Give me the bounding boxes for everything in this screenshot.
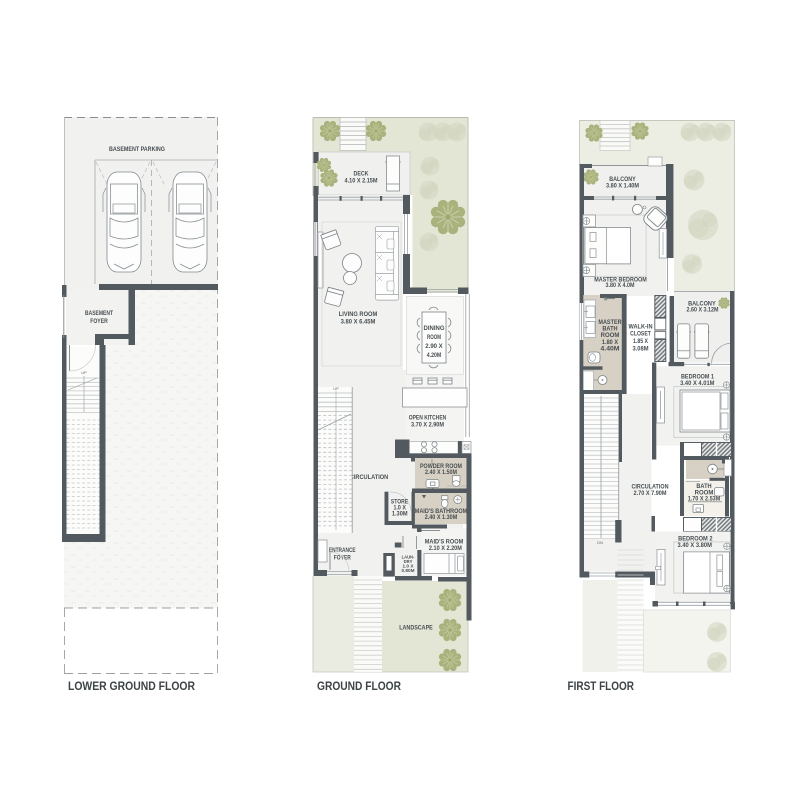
svg-text:2.60 X 3.12M: 2.60 X 3.12M — [687, 307, 719, 314]
svg-text:3.80 X 1.40M: 3.80 X 1.40M — [606, 183, 639, 190]
svg-text:2.40 X 1.30M: 2.40 X 1.30M — [425, 514, 458, 521]
svg-text:4.10 X 2.15M: 4.10 X 2.15M — [345, 178, 378, 185]
svg-text:FOYER: FOYER — [90, 318, 108, 325]
svg-text:4.40M: 4.40M — [601, 346, 620, 353]
svg-text:CLOSET: CLOSET — [630, 330, 651, 337]
svg-text:3.08M: 3.08M — [633, 346, 649, 353]
svg-text:LANDSCAPE: LANDSCAPE — [399, 625, 433, 632]
svg-text:1.30M: 1.30M — [392, 510, 408, 517]
svg-text:2.90 X: 2.90 X — [425, 343, 443, 350]
svg-text:3.80 X 4.0M: 3.80 X 4.0M — [606, 282, 635, 289]
svg-text:0.80M: 0.80M — [402, 568, 415, 573]
svg-text:UP: UP — [333, 386, 339, 391]
svg-text:LOWER GROUND FLOOR: LOWER GROUND FLOOR — [68, 681, 196, 693]
svg-text:OPEN KITCHEN: OPEN KITCHEN — [409, 415, 447, 422]
svg-text:3.70 X 2.90M: 3.70 X 2.90M — [411, 422, 444, 429]
svg-text:4.20M: 4.20M — [427, 352, 442, 359]
svg-text:UP: UP — [81, 370, 87, 375]
svg-text:CIRCULATION: CIRCULATION — [350, 474, 389, 481]
svg-text:1.70 X 2.53M: 1.70 X 2.53M — [688, 495, 721, 502]
svg-text:ENTRANCE: ENTRANCE — [329, 547, 356, 554]
svg-text:3.80 X 6.45M: 3.80 X 6.45M — [341, 319, 376, 326]
svg-text:3.40 X 4.01M: 3.40 X 4.01M — [680, 380, 714, 387]
svg-text:BASEMENT: BASEMENT — [85, 310, 113, 317]
svg-text:3.40 X 3.80M: 3.40 X 3.80M — [678, 542, 712, 549]
svg-text:ROOM: ROOM — [427, 334, 441, 341]
svg-text:2.40 X 1.50M: 2.40 X 1.50M — [425, 469, 457, 476]
svg-text:2.10 X 2.20M: 2.10 X 2.20M — [429, 545, 462, 552]
svg-text:DINING: DINING — [424, 325, 445, 332]
svg-text:1.85 X: 1.85 X — [633, 338, 649, 345]
svg-text:ROOM: ROOM — [601, 332, 620, 339]
svg-text:BASEMENT PARKING: BASEMENT PARKING — [109, 146, 165, 153]
svg-text:2.70 X 7.90M: 2.70 X 7.90M — [634, 490, 667, 497]
svg-text:LIVING ROOM: LIVING ROOM — [339, 311, 378, 318]
svg-text:FIRST FLOOR: FIRST FLOOR — [568, 681, 635, 693]
svg-text:FOYER: FOYER — [334, 555, 351, 562]
svg-text:DECK: DECK — [354, 171, 370, 178]
svg-text:DN: DN — [597, 540, 603, 545]
svg-text:GROUND FLOOR: GROUND FLOOR — [317, 681, 402, 693]
